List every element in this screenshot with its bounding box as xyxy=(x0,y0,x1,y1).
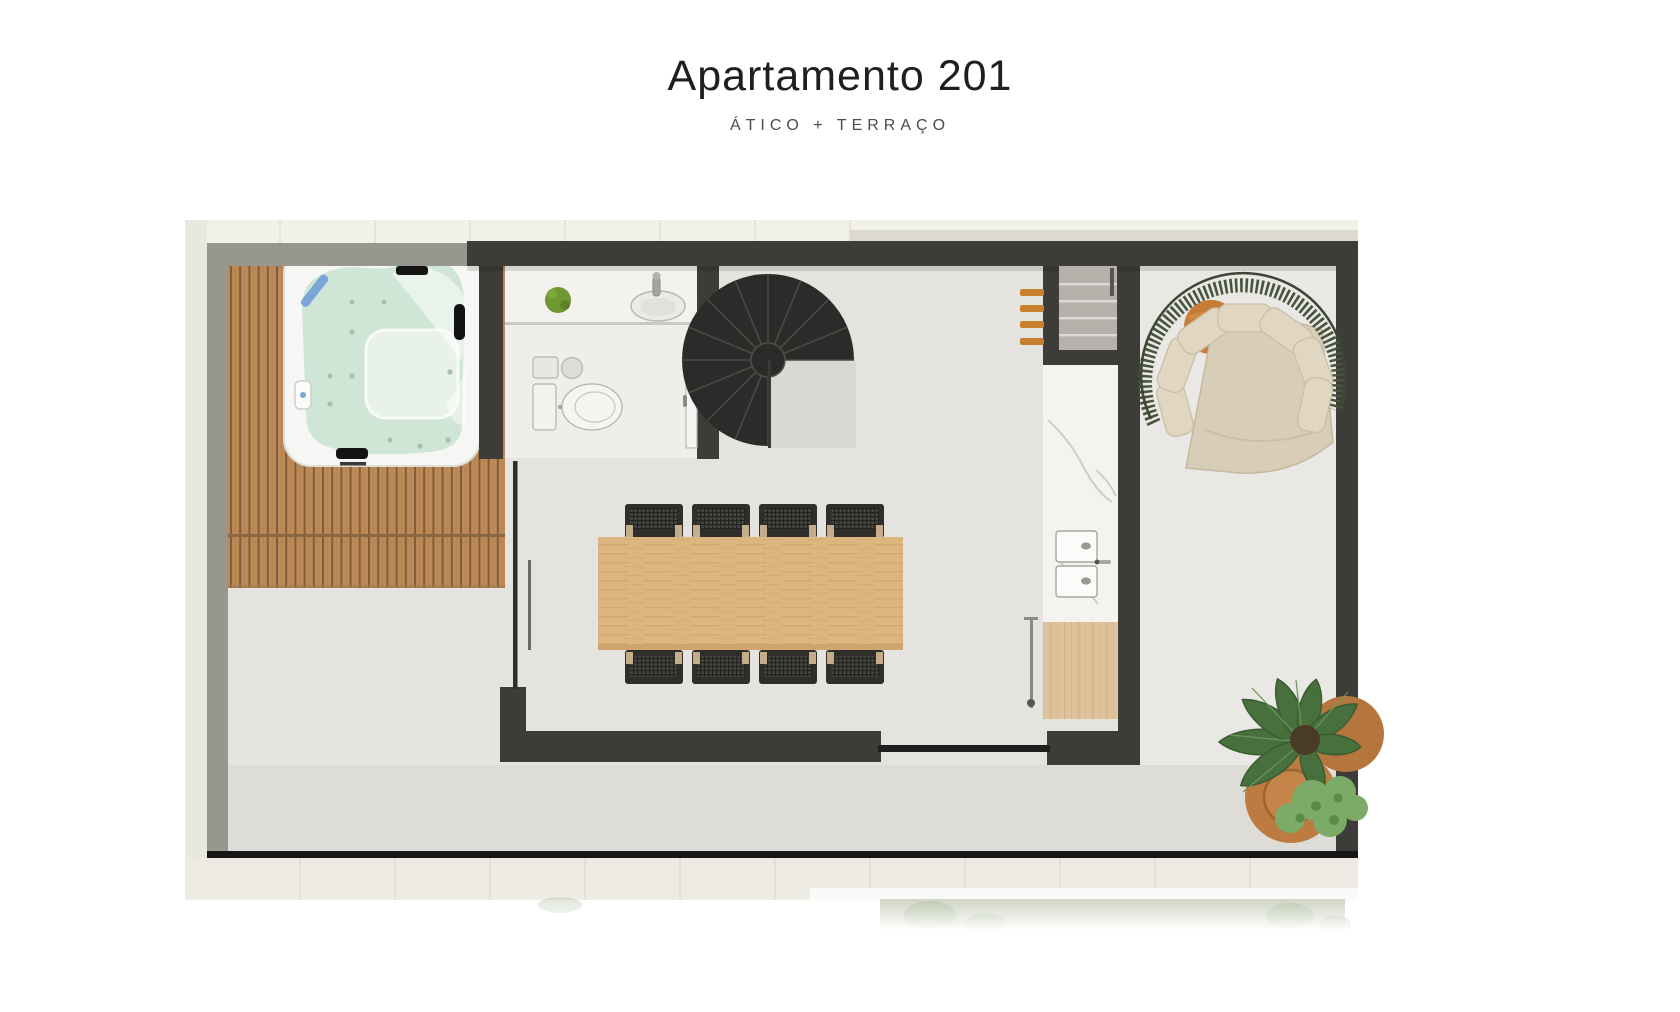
dining-chair xyxy=(692,504,750,538)
bottom-fade xyxy=(185,893,1358,943)
dining-chair xyxy=(826,650,884,684)
dining-chair xyxy=(759,650,817,684)
dining-table xyxy=(598,537,903,650)
dining-chair xyxy=(826,504,884,538)
dining-chair xyxy=(692,650,750,684)
hot-tub xyxy=(284,246,480,466)
kitchen-cabinet xyxy=(1043,622,1118,719)
dining-chair xyxy=(759,504,817,538)
hot-tub-headrest-top xyxy=(396,266,428,275)
stair-niche xyxy=(1059,266,1117,350)
hot-tub-headrest-bottom xyxy=(336,448,368,459)
dining-chair xyxy=(625,650,683,684)
floor-plan xyxy=(0,0,1680,1012)
dining-chair xyxy=(625,504,683,538)
hot-tub-headrest-right xyxy=(454,304,465,340)
